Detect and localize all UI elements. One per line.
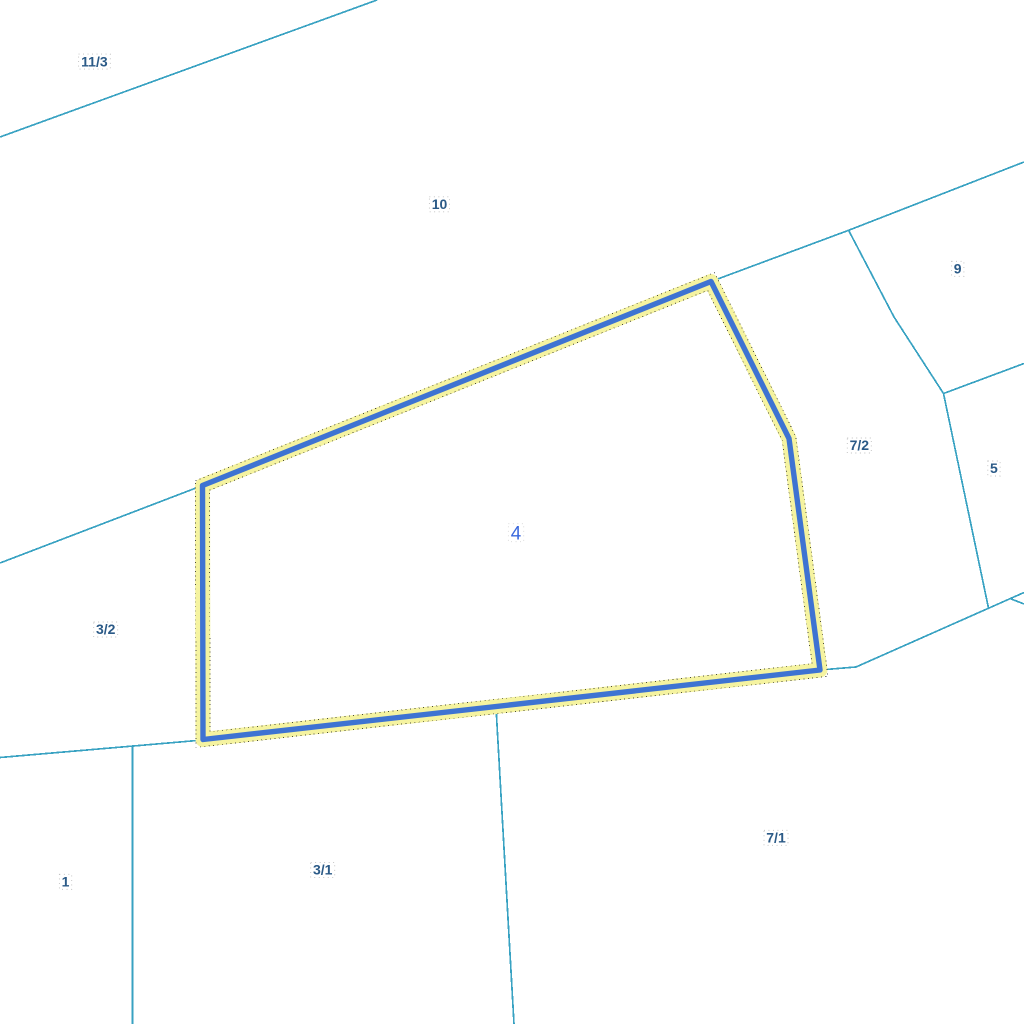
- svg-text:7/2: 7/2: [850, 437, 870, 453]
- svg-text:7/1: 7/1: [766, 830, 786, 846]
- svg-text:9: 9: [954, 261, 962, 277]
- svg-text:1: 1: [62, 874, 70, 890]
- svg-text:5: 5: [990, 460, 998, 476]
- svg-text:3/2: 3/2: [96, 621, 116, 637]
- svg-text:4: 4: [511, 523, 522, 545]
- svg-text:10: 10: [432, 196, 448, 212]
- svg-text:3/1: 3/1: [313, 862, 333, 878]
- svg-text:11/3: 11/3: [81, 53, 108, 69]
